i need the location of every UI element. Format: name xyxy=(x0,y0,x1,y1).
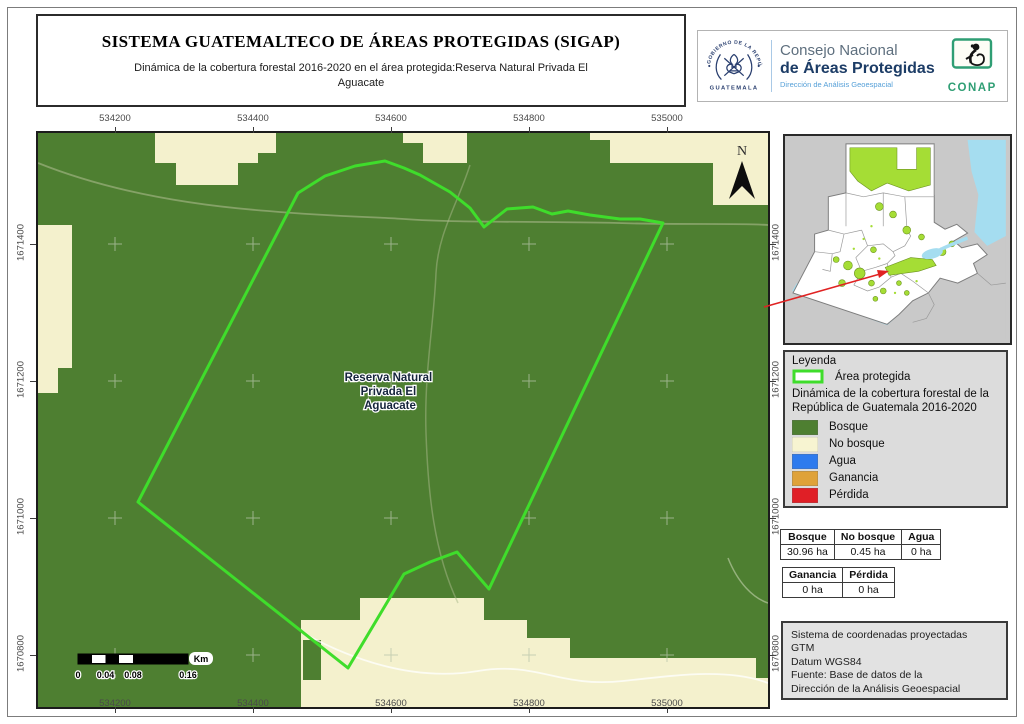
north-label: N xyxy=(737,144,747,159)
axis-tick xyxy=(667,127,668,133)
table-header: Pérdida xyxy=(843,568,895,583)
x-axis-label: 534800 xyxy=(499,113,559,124)
x-axis-label: 534600 xyxy=(361,113,421,124)
legend-item-no-bosque: No bosque xyxy=(792,437,999,452)
x-axis-label: 535000 xyxy=(637,113,697,124)
bosque-swatch-icon xyxy=(792,420,818,435)
info-line: GTM xyxy=(791,642,998,655)
ganancia-swatch-icon xyxy=(792,471,818,486)
scale-tick-label: 0 xyxy=(75,670,80,680)
info-line: Datum WGS84 xyxy=(791,656,998,669)
crs-info-box: Sistema de coordenadas proyectadas GTM D… xyxy=(781,621,1008,700)
x-axis-label: 535000 xyxy=(637,698,697,709)
table-header: Agua xyxy=(902,530,941,545)
scale-tick-label: 0.08 xyxy=(124,670,142,680)
legend-protected-row: Área protegida xyxy=(792,369,999,384)
info-line: Dirección de la Análisis Geoespacial xyxy=(791,683,998,696)
map-document-page: SISTEMA GUATEMALTECO DE ÁREAS PROTEGIDAS… xyxy=(0,0,1024,724)
org-name-line2: de Áreas Protegidas xyxy=(780,60,935,78)
axis-tick xyxy=(30,381,36,382)
coverage-stats-table: Bosque No bosque Agua 30.96 ha 0.45 ha 0… xyxy=(780,529,941,560)
y-axis-label: 1670800 xyxy=(16,624,27,684)
page-title: SISTEMA GUATEMALTECO DE ÁREAS PROTEGIDAS… xyxy=(48,32,674,52)
legend-item-label: No bosque xyxy=(829,438,885,450)
no-forest-patch xyxy=(38,225,72,393)
y-axis-label: 1670800 xyxy=(771,624,782,684)
axis-tick xyxy=(529,127,530,133)
legend-item-label: Pérdida xyxy=(829,489,869,501)
table-cell: 0 ha xyxy=(843,583,895,598)
axis-tick xyxy=(253,127,254,133)
table-cell: 0 ha xyxy=(783,583,843,598)
info-line: Fuente: Base de datos de la xyxy=(791,669,998,682)
org-name-line3: Dirección de Análisis Geoespacial xyxy=(780,81,935,89)
info-line: Sistema de coordenadas proyectadas xyxy=(791,629,998,642)
legend-subtitle: Dinámica de la cobertura forestal de la … xyxy=(792,387,999,416)
perdida-swatch-icon xyxy=(792,488,818,503)
y-axis-label: 1671000 xyxy=(16,487,27,547)
x-axis-label: 534600 xyxy=(361,698,421,709)
x-axis-label: 534400 xyxy=(223,113,283,124)
y-axis-label: 1671400 xyxy=(771,213,782,273)
table-header: Ganancia xyxy=(783,568,843,583)
legend-protected-label: Área protegida xyxy=(835,371,910,383)
conap-monkey-icon xyxy=(949,38,995,76)
main-map: Reserva Natural Privada El Aguacate N Km… xyxy=(36,131,770,709)
main-map-canvas: Reserva Natural Privada El Aguacate N Km… xyxy=(38,133,768,707)
y-axis-label: 1671400 xyxy=(16,213,27,273)
y-axis-label: 1671200 xyxy=(771,350,782,410)
x-axis-label: 534200 xyxy=(85,113,145,124)
x-axis-label: 534400 xyxy=(223,698,283,709)
legend-title: Leyenda xyxy=(792,355,999,367)
legend-item-label: Ganancia xyxy=(829,472,878,484)
table-header: No bosque xyxy=(834,530,901,545)
guatemala-inset-map xyxy=(783,134,1012,345)
table-cell: 0 ha xyxy=(902,545,941,560)
legend-item-label: Agua xyxy=(829,455,856,467)
header-title-box: SISTEMA GUATEMALTECO DE ÁREAS PROTEGIDAS… xyxy=(36,14,686,107)
legend-item-perdida: Pérdida xyxy=(792,488,999,503)
axis-tick xyxy=(30,655,36,656)
conap-wordmark: Consejo Nacional de Áreas Protegidas Dir… xyxy=(780,43,935,89)
inset-map-canvas xyxy=(785,136,1006,339)
scale-tick-label: 0.04 xyxy=(97,670,115,680)
protected-area-swatch-icon xyxy=(792,369,824,384)
org-name-line1: Consejo Nacional xyxy=(780,43,935,60)
page-subtitle: Dinámica de la cobertura forestal 2016-2… xyxy=(119,61,604,91)
guatemala-government-seal-icon: GOBIERNO DE LA REPÚBLICA GUATEMALA xyxy=(703,34,765,98)
legend-item-agua: Agua xyxy=(792,454,999,469)
scale-tick-label: 0.16 xyxy=(179,670,197,680)
legend-item-bosque: Bosque xyxy=(792,420,999,435)
header-logo-box: GOBIERNO DE LA REPÚBLICA GUATEMALA Conse… xyxy=(697,30,1008,102)
legend: Leyenda Área protegida Dinámica de la co… xyxy=(783,350,1008,508)
legend-item-label: Bosque xyxy=(829,421,868,433)
logo-divider xyxy=(771,40,772,92)
table-header: Bosque xyxy=(781,530,835,545)
seal-bottom-text: GUATEMALA xyxy=(710,85,759,91)
legend-item-ganancia: Ganancia xyxy=(792,471,999,486)
scale-unit-label: Km xyxy=(194,654,209,664)
agua-swatch-icon xyxy=(792,454,818,469)
axis-tick xyxy=(391,127,392,133)
no-bosque-swatch-icon xyxy=(792,437,818,452)
x-axis-label: 534200 xyxy=(85,698,145,709)
change-stats-table: Ganancia Pérdida 0 ha 0 ha xyxy=(782,567,895,598)
axis-tick xyxy=(30,244,36,245)
table-cell: 30.96 ha xyxy=(781,545,835,560)
x-axis-label: 534800 xyxy=(499,698,559,709)
conap-logo: CONAP xyxy=(948,38,997,94)
y-axis-label: 1671200 xyxy=(16,350,27,410)
table-cell: 0.45 ha xyxy=(834,545,901,560)
axis-tick xyxy=(30,518,36,519)
conap-text: CONAP xyxy=(948,82,997,94)
axis-tick xyxy=(115,127,116,133)
